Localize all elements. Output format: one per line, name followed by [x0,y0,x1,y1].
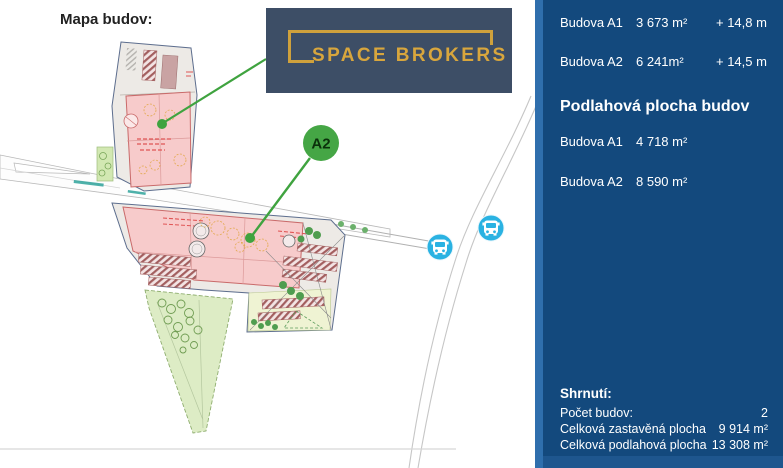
building-name: Budova A1 [560,15,636,30]
parcel-a2 [112,203,368,332]
building-area: 6 241m² [636,54,716,69]
summary-value: 2 [761,405,768,421]
a2-marker-label: A2 [311,136,330,153]
building-area: 8 590 m² [636,174,716,189]
sidebar-footer-band [543,456,783,468]
parcel-a1 [97,42,197,191]
summary-label: Celková podlahová plocha [560,437,707,453]
building-height: + 14,8 m [716,15,769,30]
building-area: 4 718 m² [636,134,716,149]
building-a1-dot [157,119,167,129]
bus-stop-icon[interactable] [427,234,453,260]
space-brokers-logo: SPACE BROKERS [266,8,512,93]
green-strip [145,290,233,433]
page: A2 Mapa budov: [0,0,783,468]
summary-label: Celková zastavěná plocha [560,421,706,437]
summary-section: Shrnutí: Počet budov: 2 Celková zastavěn… [560,386,768,453]
building-name: Budova A1 [560,134,636,149]
logo-text: SPACE BROKERS [312,45,508,67]
info-sidebar: Budova A1 3 673 m² + 14,8 m Budova A2 6 … [535,0,783,468]
building-height: + 14,5 m [716,54,769,69]
building-row: Budova A1 3 673 m² + 14,8 m [560,15,769,30]
building-row: Budova A2 6 241m² + 14,5 m [560,54,769,69]
floor-row: Budova A1 4 718 m² [560,134,769,149]
site-map-area: A2 Mapa budov: [0,0,535,468]
summary-row: Celková zastavěná plocha 9 914 m² [560,421,768,437]
building-a2-dot [245,233,255,243]
sidebar-accent-stripe [535,0,543,468]
sidebar-panel: Budova A1 3 673 m² + 14,8 m Budova A2 6 … [543,0,783,468]
building-name: Budova A2 [560,54,636,69]
summary-value: 13 308 m² [712,437,768,453]
summary-row: Počet budov: 2 [560,405,768,421]
building-area: 3 673 m² [636,15,716,30]
bus-stop-icon[interactable] [478,215,504,241]
summary-label: Počet budov: [560,405,633,421]
floor-row: Budova A2 8 590 m² [560,174,769,189]
a2-marker-icon[interactable]: A2 [303,125,339,161]
floor-area-heading: Podlahová plocha budov [560,98,769,116]
summary-row: Celková podlahová plocha 13 308 m² [560,437,768,453]
logo-frame [288,30,493,33]
page-title: Mapa budov: [60,11,153,28]
summary-heading: Shrnutí: [560,386,768,401]
summary-value: 9 914 m² [719,421,768,437]
building-name: Budova A2 [560,174,636,189]
